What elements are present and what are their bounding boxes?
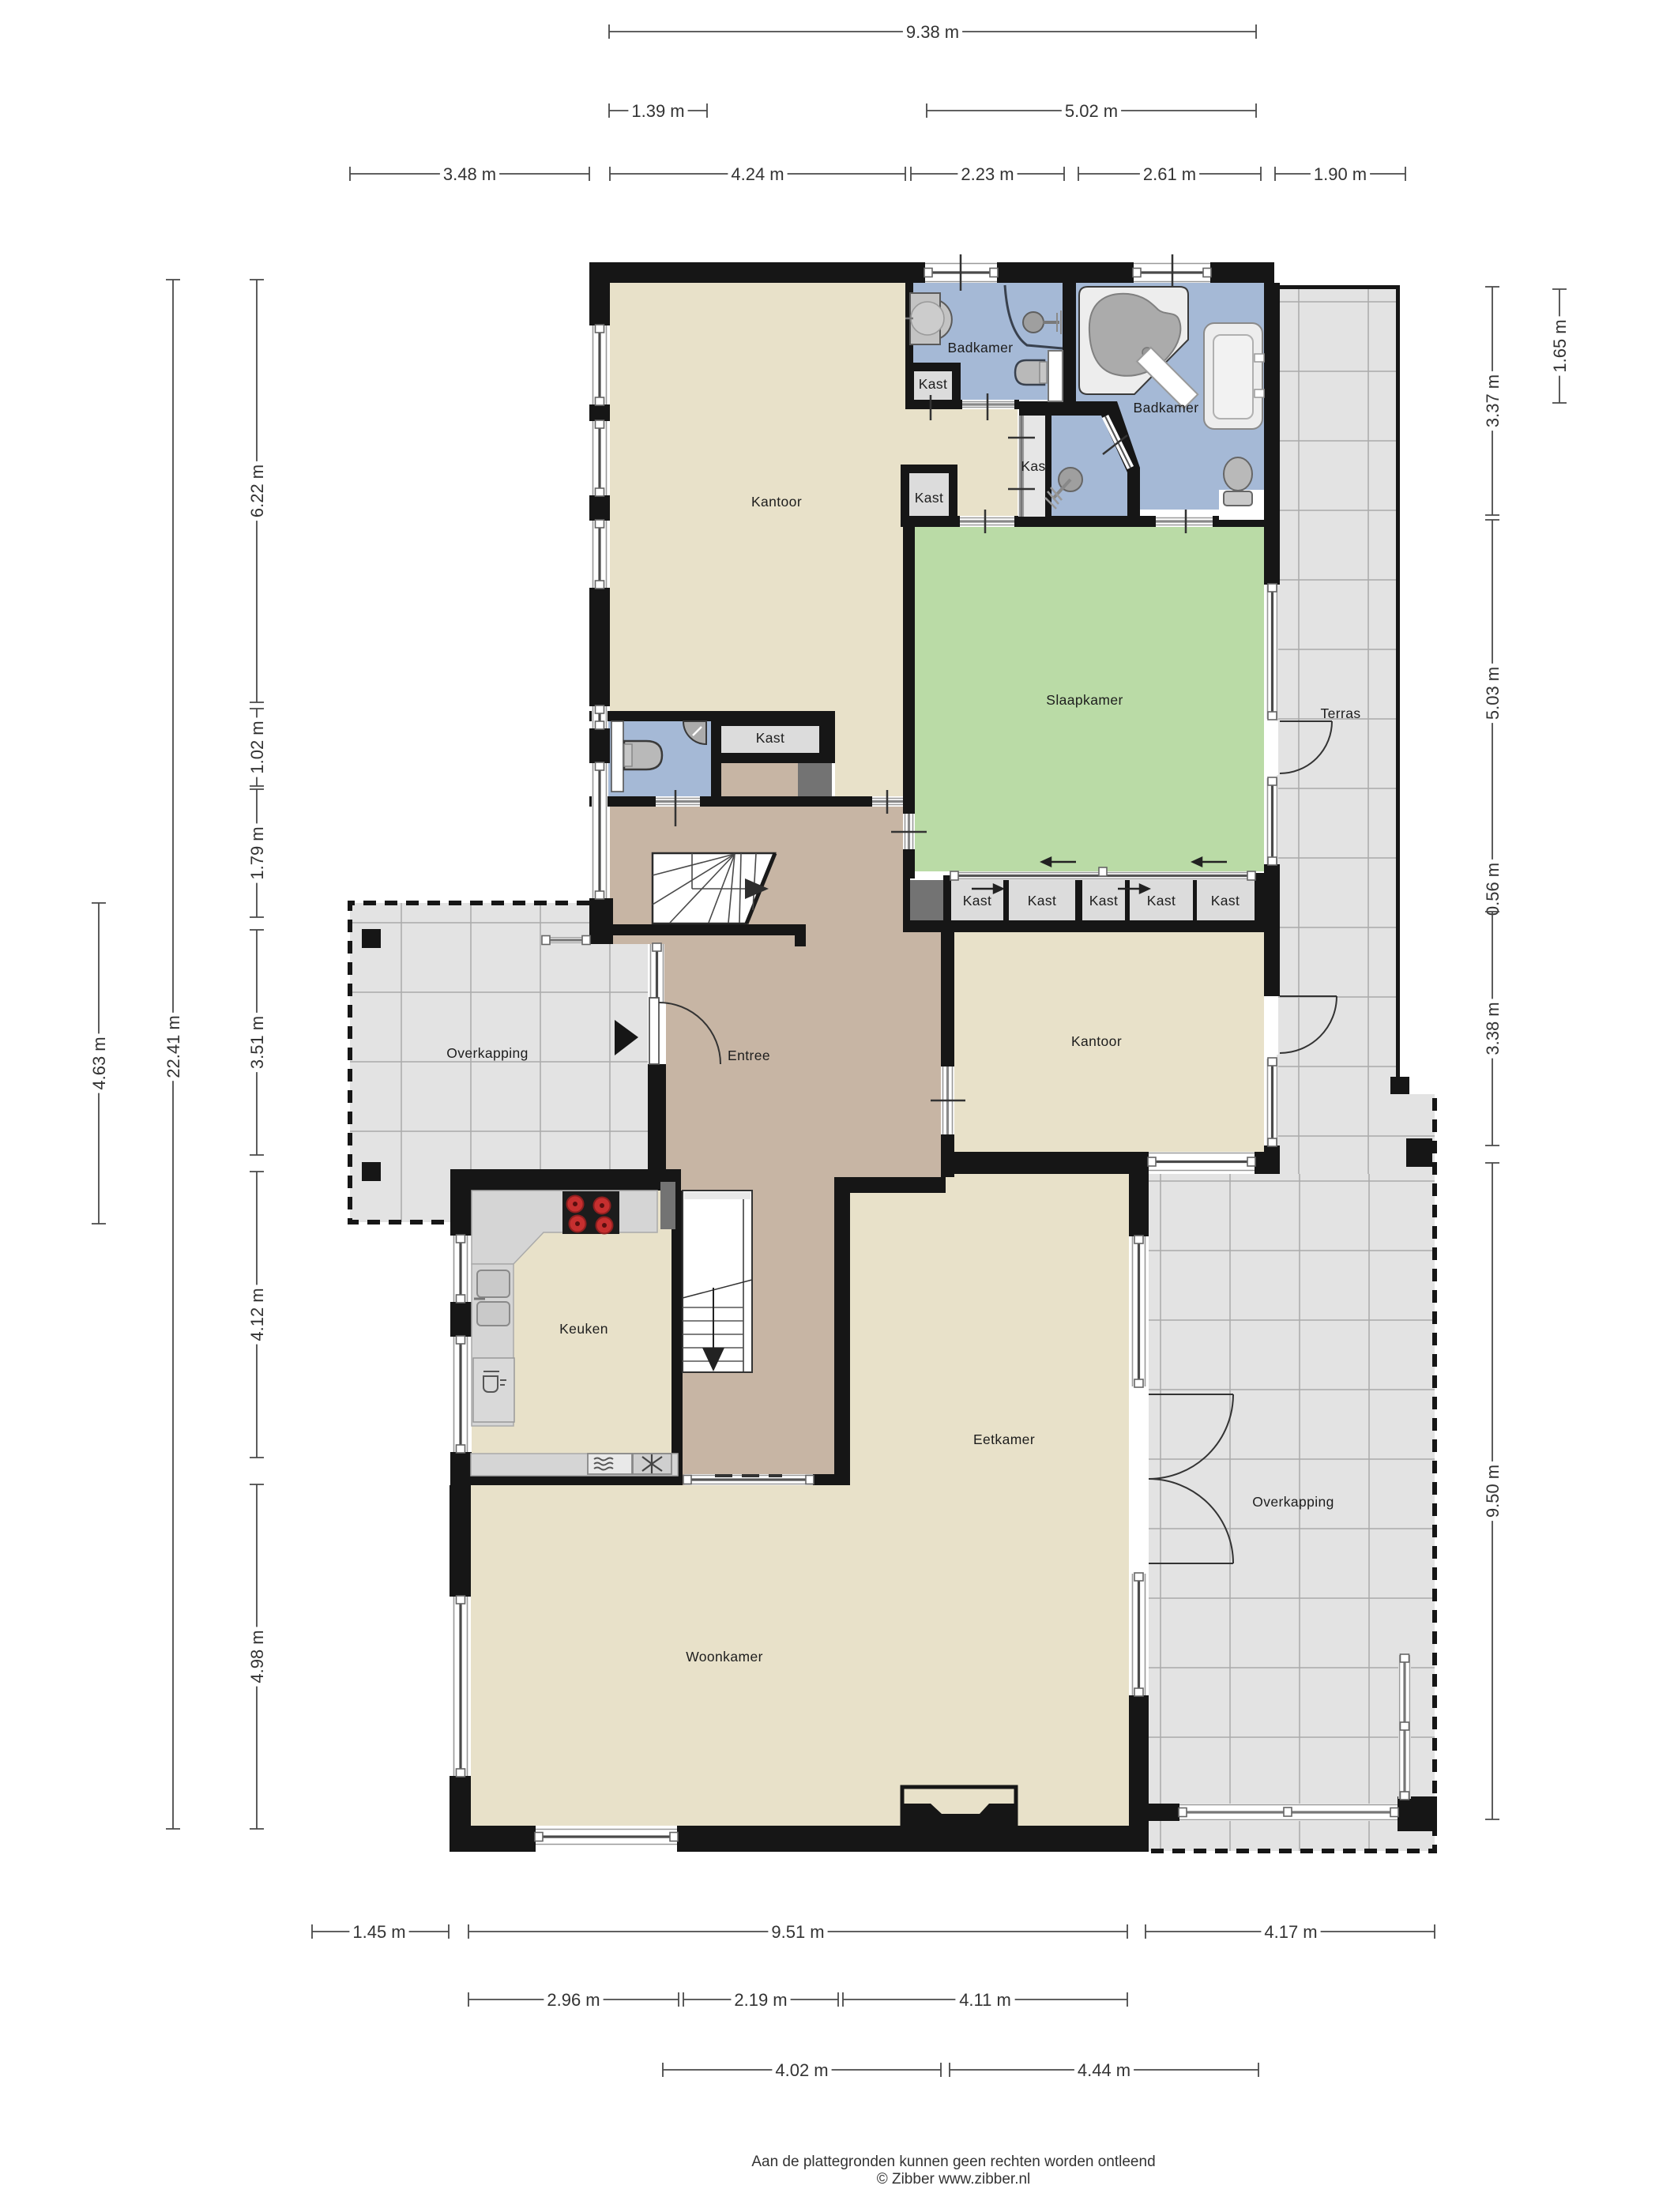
svg-text:6.22 m: 6.22 m <box>247 465 267 517</box>
svg-text:4.63 m: 4.63 m <box>89 1036 109 1089</box>
svg-text:Overkapping: Overkapping <box>446 1045 529 1061</box>
svg-text:9.50 m: 9.50 m <box>1483 1465 1503 1518</box>
svg-text:5.02 m: 5.02 m <box>1065 101 1118 121</box>
svg-text:22.41 m: 22.41 m <box>164 1015 183 1078</box>
svg-text:1.79 m: 1.79 m <box>247 826 267 879</box>
svg-text:Kast: Kast <box>1089 893 1119 908</box>
svg-text:Overkapping: Overkapping <box>1252 1494 1334 1510</box>
svg-text:4.98 m: 4.98 m <box>247 1630 267 1683</box>
svg-text:Kantoor: Kantoor <box>1071 1033 1122 1049</box>
svg-text:Aan de plattegronden kunnen ge: Aan de plattegronden kunnen geen rechten… <box>751 2154 1155 2170</box>
svg-text:9.38 m: 9.38 m <box>906 22 959 42</box>
svg-text:Kast: Kast <box>963 893 992 908</box>
svg-text:Kast: Kast <box>756 730 785 746</box>
svg-text:3.37 m: 3.37 m <box>1483 374 1503 427</box>
svg-text:Badkamer: Badkamer <box>1134 400 1199 416</box>
svg-text:3.51 m: 3.51 m <box>247 1016 267 1069</box>
svg-text:© Zibber www.zibber.nl: © Zibber www.zibber.nl <box>877 2171 1031 2188</box>
svg-text:4.02 m: 4.02 m <box>775 2060 828 2080</box>
svg-text:0.56 m: 0.56 m <box>1483 863 1503 916</box>
svg-text:3.38 m: 3.38 m <box>1483 1002 1503 1055</box>
svg-text:Eetkamer: Eetkamer <box>973 1431 1035 1447</box>
svg-text:4.24 m: 4.24 m <box>731 164 784 184</box>
svg-text:2.23 m: 2.23 m <box>961 164 1014 184</box>
svg-text:4.12 m: 4.12 m <box>247 1288 267 1341</box>
svg-text:Kast: Kast <box>915 490 944 506</box>
svg-text:5.03 m: 5.03 m <box>1483 667 1503 720</box>
svg-text:1.45 m: 1.45 m <box>352 1922 405 1942</box>
svg-text:1.39 m: 1.39 m <box>631 101 684 121</box>
svg-text:Kast: Kast <box>919 376 948 392</box>
svg-text:Kas: Kas <box>1021 458 1045 474</box>
svg-text:9.51 m: 9.51 m <box>771 1922 824 1942</box>
svg-text:Woonkamer: Woonkamer <box>686 1649 763 1665</box>
svg-text:1.90 m: 1.90 m <box>1314 164 1367 184</box>
svg-text:4.11 m: 4.11 m <box>959 1990 1011 2010</box>
svg-text:4.44 m: 4.44 m <box>1078 2060 1130 2080</box>
svg-text:2.96 m: 2.96 m <box>547 1990 600 2010</box>
svg-text:Entree: Entree <box>728 1048 770 1063</box>
svg-text:4.17 m: 4.17 m <box>1264 1922 1317 1942</box>
svg-text:Kast: Kast <box>1211 893 1240 908</box>
svg-text:Kantoor: Kantoor <box>751 494 802 510</box>
svg-text:1.02 m: 1.02 m <box>247 720 267 773</box>
svg-text:Terras: Terras <box>1320 705 1360 721</box>
svg-text:Kast: Kast <box>1147 893 1176 908</box>
svg-text:Badkamer: Badkamer <box>948 340 1014 355</box>
svg-text:Keuken: Keuken <box>559 1321 608 1337</box>
svg-text:Slaapkamer: Slaapkamer <box>1046 692 1123 708</box>
svg-text:2.61 m: 2.61 m <box>1143 164 1196 184</box>
svg-text:Kast: Kast <box>1028 893 1057 908</box>
svg-text:3.48 m: 3.48 m <box>443 164 496 184</box>
svg-text:2.19 m: 2.19 m <box>734 1990 787 2010</box>
svg-text:1.65 m: 1.65 m <box>1550 319 1570 372</box>
